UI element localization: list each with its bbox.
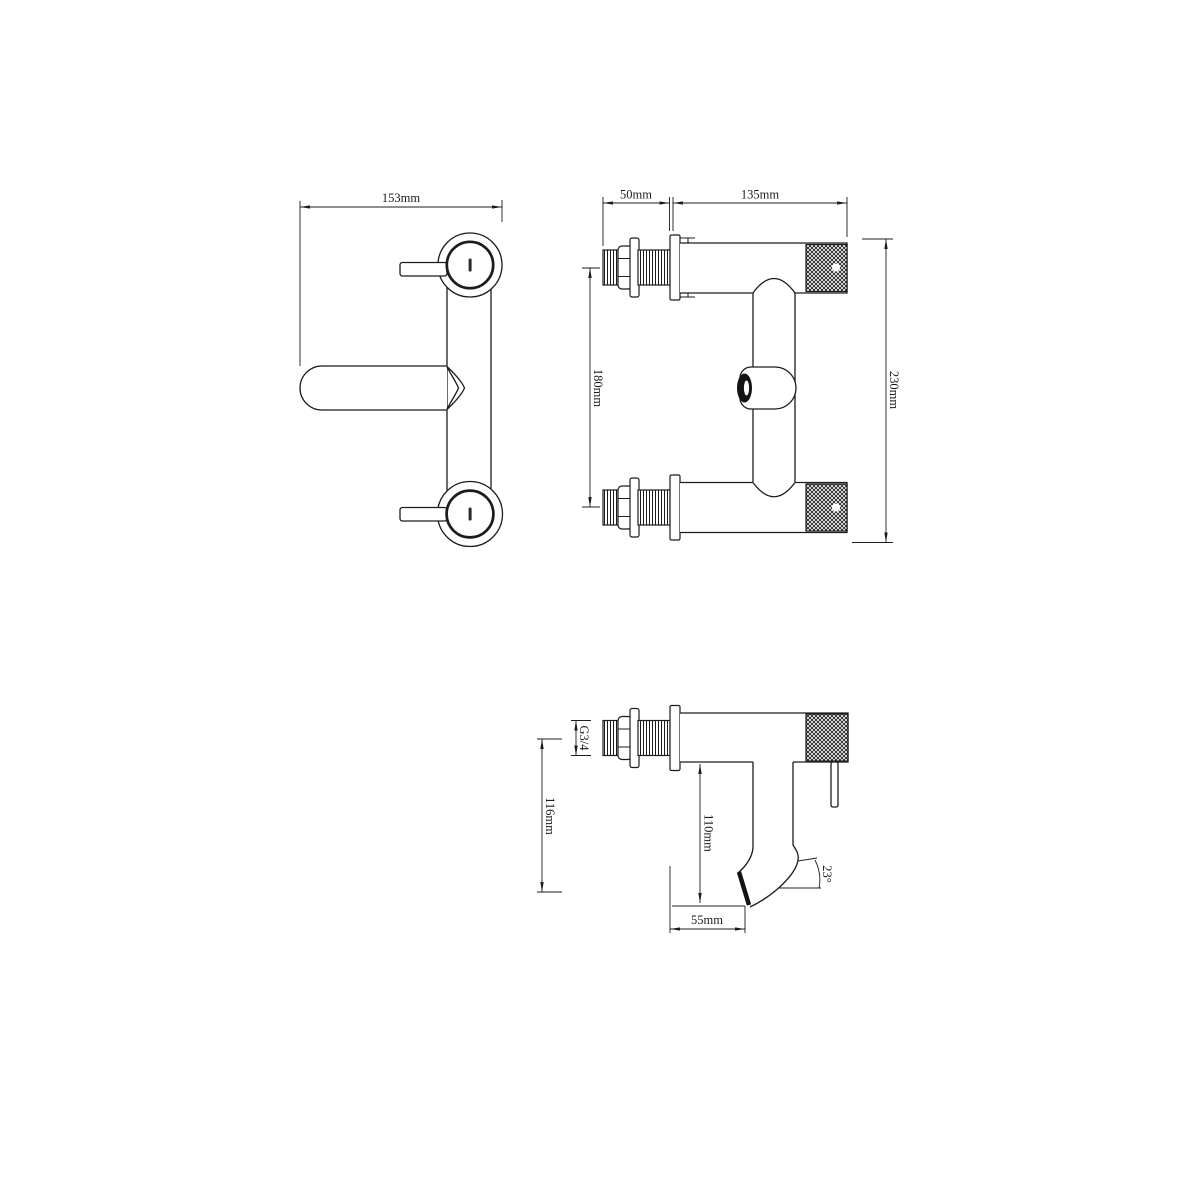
dim-label-total-drop: 116mm <box>543 797 557 835</box>
spout-outlet-hub <box>737 367 796 409</box>
handle-lever <box>400 263 447 277</box>
knurled-handle-grip <box>806 245 847 292</box>
knurled-handle-grip <box>806 714 848 761</box>
handle-index-slot <box>469 508 472 521</box>
grip-dot <box>832 504 840 512</box>
spout-front <box>300 366 447 410</box>
handle-lever-side <box>831 762 838 807</box>
top-valve-body <box>680 243 847 293</box>
dim-label-spout-angle: 23° <box>820 865 834 883</box>
grip-dot <box>832 264 840 272</box>
handle-index-slot <box>469 259 472 272</box>
dim-label-body-length: 135mm <box>741 188 779 202</box>
paper-background <box>0 0 1200 1200</box>
dim-label-spout-reach: 55mm <box>691 913 723 927</box>
dim-label-thread: G3/4 <box>577 726 591 752</box>
knurled-handle-grip <box>806 484 847 531</box>
handle-lever <box>400 508 447 522</box>
drawing-sheet: 153mm 50mm <box>0 0 1200 1200</box>
drawing-canvas: 153mm 50mm <box>0 0 1200 1200</box>
dim-label-inlet-spacing: 180mm <box>591 369 605 407</box>
dim-label-overall-height: 230mm <box>887 371 901 409</box>
bottom-valve-body <box>680 483 847 533</box>
dim-label-stem-length: 50mm <box>620 188 652 202</box>
dim-label-spout-drop: 110mm <box>702 814 716 852</box>
dim-label-front-width: 153mm <box>382 191 420 205</box>
